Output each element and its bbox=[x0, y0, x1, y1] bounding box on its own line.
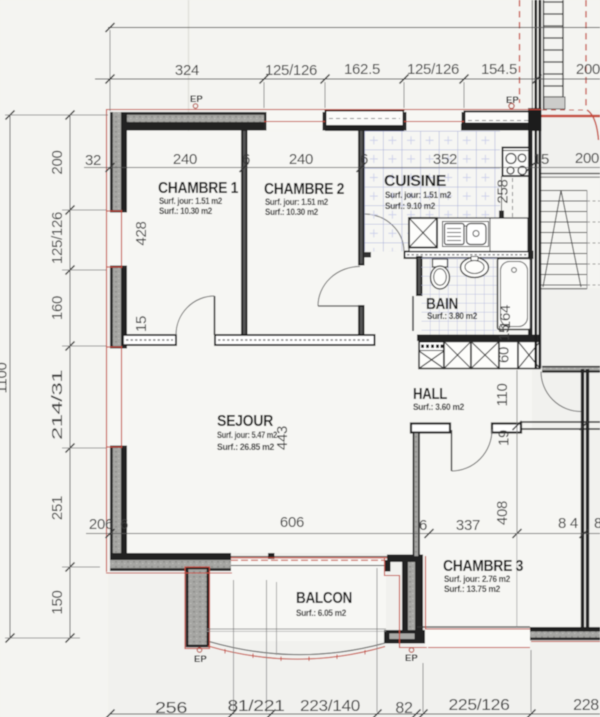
svg-text:606: 606 bbox=[280, 514, 304, 531]
svg-text:206: 206 bbox=[89, 516, 113, 533]
svg-text:125/126: 125/126 bbox=[407, 61, 459, 78]
svg-text:EP: EP bbox=[190, 94, 203, 105]
svg-text:32: 32 bbox=[85, 152, 101, 169]
svg-text:82: 82 bbox=[395, 700, 413, 717]
svg-text:60: 60 bbox=[496, 347, 513, 363]
svg-text:1100: 1100 bbox=[0, 362, 11, 393]
svg-text:337: 337 bbox=[456, 517, 480, 534]
svg-text:Surf.: 3.80 m2: Surf.: 3.80 m2 bbox=[427, 311, 477, 322]
svg-text:BALCON: BALCON bbox=[296, 590, 352, 607]
svg-text:6: 6 bbox=[360, 151, 368, 168]
svg-text:EP: EP bbox=[506, 95, 519, 106]
svg-text:6: 6 bbox=[242, 151, 250, 168]
svg-text:125/126: 125/126 bbox=[265, 62, 317, 79]
svg-text:225/126: 225/126 bbox=[449, 697, 510, 714]
svg-text:EP: EP bbox=[194, 654, 207, 665]
svg-text:214/31: 214/31 bbox=[49, 370, 66, 440]
svg-text:EP: EP bbox=[405, 653, 418, 664]
svg-text:256: 256 bbox=[155, 700, 187, 717]
svg-text:CHAMBRE 2: CHAMBRE 2 bbox=[264, 181, 344, 198]
svg-text:200: 200 bbox=[576, 61, 600, 78]
svg-text:8 4: 8 4 bbox=[558, 515, 578, 532]
svg-text:Surf.: 13.75 m2: Surf.: 13.75 m2 bbox=[444, 584, 500, 595]
svg-text:Surf. jour: 5.47 m2: Surf. jour: 5.47 m2 bbox=[217, 430, 277, 441]
svg-text:Surf.: 3.60 m2: Surf.: 3.60 m2 bbox=[413, 402, 464, 413]
svg-text:15: 15 bbox=[133, 316, 150, 332]
svg-text:Surf. jour: 1.51 m2: Surf. jour: 1.51 m2 bbox=[385, 190, 451, 201]
svg-text:162.5: 162.5 bbox=[344, 61, 380, 78]
svg-text:Surf.: 9.10 m2: Surf.: 9.10 m2 bbox=[385, 201, 435, 212]
svg-text:15: 15 bbox=[496, 325, 513, 341]
svg-text:CHAMBRE 3: CHAMBRE 3 bbox=[443, 558, 524, 575]
svg-text:Surf.: 26.85 m2: Surf.: 26.85 m2 bbox=[217, 442, 274, 453]
svg-text:428: 428 bbox=[133, 221, 150, 245]
svg-text:240: 240 bbox=[289, 151, 313, 168]
svg-text:15: 15 bbox=[533, 151, 549, 168]
svg-text:6: 6 bbox=[419, 517, 427, 534]
svg-text:CHAMBRE 1: CHAMBRE 1 bbox=[158, 180, 239, 197]
svg-text:Surf.: 10.30 m2: Surf.: 10.30 m2 bbox=[265, 207, 318, 218]
svg-text:125/126: 125/126 bbox=[49, 212, 66, 264]
svg-text:Surf.: 6.05 m2: Surf.: 6.05 m2 bbox=[296, 608, 346, 619]
svg-text:352: 352 bbox=[433, 151, 457, 168]
svg-text:251: 251 bbox=[49, 496, 66, 520]
svg-text:154.5: 154.5 bbox=[481, 61, 517, 78]
svg-text:258: 258 bbox=[495, 179, 512, 203]
svg-text:19: 19 bbox=[496, 430, 513, 446]
svg-text:150: 150 bbox=[49, 590, 66, 614]
svg-text:223/140: 223/140 bbox=[300, 698, 360, 715]
svg-text:CUISINE: CUISINE bbox=[384, 173, 446, 190]
svg-text:408: 408 bbox=[494, 501, 511, 525]
svg-text:200: 200 bbox=[575, 150, 599, 167]
svg-text:228: 228 bbox=[573, 697, 599, 714]
svg-text:110: 110 bbox=[494, 383, 511, 406]
svg-text:SEJOUR: SEJOUR bbox=[217, 413, 273, 430]
svg-text:240: 240 bbox=[173, 151, 197, 168]
svg-text:HALL: HALL bbox=[413, 386, 447, 403]
svg-text:8: 8 bbox=[594, 515, 600, 532]
svg-text:200: 200 bbox=[49, 150, 66, 174]
svg-text:81/221: 81/221 bbox=[228, 698, 285, 715]
svg-text:324: 324 bbox=[175, 62, 199, 79]
svg-text:6: 6 bbox=[120, 516, 128, 533]
svg-text:160: 160 bbox=[49, 296, 66, 320]
svg-text:Surf.: 10.30 m2: Surf.: 10.30 m2 bbox=[159, 206, 212, 217]
